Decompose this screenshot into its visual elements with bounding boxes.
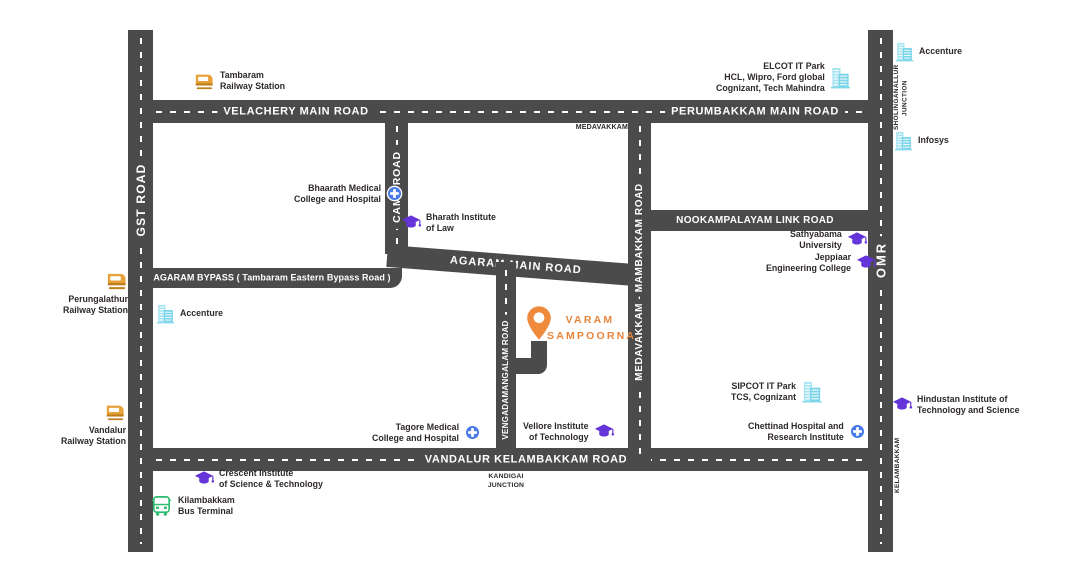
graduation-cap-icon bbox=[401, 214, 421, 231]
label-line: College and Hospital bbox=[294, 194, 381, 205]
landmark-perungalathur-railway-station: Perungalathur Railway Station bbox=[64, 270, 128, 316]
landmark-label: Perungalathur Railway Station bbox=[63, 294, 128, 316]
label-line: ELCOT IT Park bbox=[716, 61, 825, 72]
landmark-accenture-sholinganallur: Accenture bbox=[895, 41, 962, 62]
landmark-label: ELCOT IT Park HCL, Wipro, Ford global Co… bbox=[716, 61, 825, 94]
landmark-hindustan-institute: Hindustan Institute of Technology and Sc… bbox=[892, 394, 1020, 416]
office-building-icon bbox=[894, 130, 913, 151]
road-label-nookampalayam-link-road: NOOKAMPALAYAM LINK ROAD bbox=[670, 213, 840, 229]
graduation-cap-icon bbox=[892, 396, 912, 413]
label-line: College and Hospital bbox=[372, 433, 459, 444]
label-line: Bhaarath Medical bbox=[294, 183, 381, 194]
junction-label-kandigai: KANDIGAI JUNCTION bbox=[481, 472, 531, 490]
label-line: Infosys bbox=[918, 135, 949, 146]
label-line: Chettinad Hospital and bbox=[748, 421, 844, 432]
hospital-cross-icon bbox=[849, 423, 866, 440]
road-medavakkam-mambakkam: MEDAVAKKAM - MAMBAKKAM ROAD bbox=[628, 118, 651, 470]
office-building-icon bbox=[895, 41, 914, 62]
hospital-cross-icon bbox=[386, 185, 403, 202]
road-label-agaram-bypass: AGARAM BYPASS ( Tambaram Eastern Bypass … bbox=[147, 271, 396, 286]
graduation-cap-icon bbox=[847, 231, 867, 248]
landmark-tagore-medical-college: Tagore Medical College and Hospital bbox=[372, 422, 481, 444]
graduation-cap-icon bbox=[856, 254, 876, 271]
project-name-line: VARAM bbox=[547, 313, 633, 329]
junction-label-line: SHOLINGANALLUR bbox=[893, 66, 902, 130]
label-line: Bus Terminal bbox=[178, 506, 235, 517]
landmark-sathyabama-university: Sathyabama University bbox=[790, 229, 867, 251]
landmark-label: Vandalur Railway Station bbox=[61, 425, 126, 447]
landmark-label: SIPCOT IT Park TCS, Cognizant bbox=[731, 381, 796, 403]
junction-label-medavakkam: MEDAVAKKAM bbox=[570, 123, 628, 132]
label-line: Tagore Medical bbox=[372, 422, 459, 433]
landmark-accenture-gst: Accenture bbox=[156, 303, 223, 324]
landmark-label: Chettinad Hospital and Research Institut… bbox=[748, 421, 844, 443]
road-nookampalayam-link: NOOKAMPALAYAM LINK ROAD bbox=[645, 210, 868, 231]
bus-icon bbox=[150, 494, 173, 517]
landmark-label: Tambaram Railway Station bbox=[220, 70, 285, 92]
office-building-icon bbox=[830, 66, 851, 89]
office-building-icon bbox=[156, 303, 175, 324]
junction-label-line: KANDIGAI bbox=[481, 472, 531, 481]
road-omr: OMR bbox=[868, 30, 893, 552]
office-building-icon bbox=[801, 380, 823, 403]
train-icon bbox=[193, 71, 215, 91]
label-line: Accenture bbox=[919, 46, 962, 57]
label-line: Vellore Institute bbox=[523, 421, 589, 432]
landmark-label: Accenture bbox=[919, 46, 962, 57]
label-line: Crescent Institute bbox=[219, 468, 323, 479]
road-label-medavakkam-mambakkam-road: MEDAVAKKAM - MAMBAKKAM ROAD bbox=[633, 177, 647, 386]
project-name: VARAM SAMPOORNA bbox=[547, 313, 633, 345]
label-line: of Law bbox=[426, 223, 496, 234]
landmark-label: Sathyabama University bbox=[790, 229, 842, 251]
label-line: Jeppiaar bbox=[766, 252, 851, 263]
label-line: of Technology bbox=[523, 432, 589, 443]
landmark-label: Tagore Medical College and Hospital bbox=[372, 422, 459, 444]
location-map: VELACHERY MAIN ROAD PERUMBAKKAM MAIN ROA… bbox=[0, 0, 1068, 581]
road-agaram-bypass: AGARAM BYPASS ( Tambaram Eastern Bypass … bbox=[150, 268, 402, 288]
junction-label-sholinganallur: SHOLINGANALLUR JUNCTION bbox=[893, 66, 910, 130]
label-line: Technology and Science bbox=[917, 405, 1020, 416]
label-line: Hindustan Institute of bbox=[917, 394, 1020, 405]
road-gst: GST ROAD bbox=[128, 30, 153, 552]
label-line: Engineering College bbox=[766, 263, 851, 274]
project-name-line: SAMPOORNA bbox=[547, 329, 633, 345]
label-line: HCL, Wipro, Ford global bbox=[716, 72, 825, 83]
landmark-label: Hindustan Institute of Technology and Sc… bbox=[917, 394, 1020, 416]
landmark-jeppiaar-engineering-college: Jeppiaar Engineering College bbox=[766, 252, 876, 274]
label-line: University bbox=[790, 240, 842, 251]
junction-label-line: JUNCTION bbox=[481, 481, 531, 490]
road-label-vandalur-kelambakkam-road: VANDALUR KELAMBAKKAM ROAD bbox=[419, 451, 633, 468]
landmark-bharath-institute-of-law: Bharath Institute of Law bbox=[401, 212, 496, 234]
label-line: Vandalur bbox=[61, 425, 126, 436]
road-velachery-perumbakkam-main: VELACHERY MAIN ROAD PERUMBAKKAM MAIN ROA… bbox=[128, 100, 893, 123]
label-line: Sathyabama bbox=[790, 229, 842, 240]
label-line: Kilambakkam bbox=[178, 495, 235, 506]
label-line: Railway Station bbox=[63, 305, 128, 316]
road-label-velachery-main-road: VELACHERY MAIN ROAD bbox=[217, 103, 374, 120]
landmark-kilambakkam-bus-terminal: Kilambakkam Bus Terminal bbox=[150, 494, 235, 517]
train-icon bbox=[105, 270, 128, 291]
junction-label-kelambakkam: KELAMBAKKAM bbox=[894, 436, 903, 494]
landmark-chettinad-hospital: Chettinad Hospital and Research Institut… bbox=[748, 421, 866, 443]
landmark-crescent-institute: Crescent Institute of Science & Technolo… bbox=[194, 468, 323, 490]
label-line: TCS, Cognizant bbox=[731, 392, 796, 403]
landmark-label: Infosys bbox=[918, 135, 949, 146]
road-label-vengadamangalam-road: VENGADAMANGALAM ROAD bbox=[500, 314, 512, 445]
landmark-label: Vellore Institute of Technology bbox=[523, 421, 589, 443]
landmark-elcot-it-park: ELCOT IT Park HCL, Wipro, Ford global Co… bbox=[716, 61, 851, 94]
landmark-label: Jeppiaar Engineering College bbox=[766, 252, 851, 274]
graduation-cap-icon bbox=[194, 470, 214, 487]
label-line: Accenture bbox=[180, 308, 223, 319]
landmark-label: Bhaarath Medical College and Hospital bbox=[294, 183, 381, 205]
junction-label-line: JUNCTION bbox=[902, 66, 911, 130]
landmark-vandalur-railway-station: Vandalur Railway Station bbox=[60, 402, 126, 447]
label-line: SIPCOT IT Park bbox=[731, 381, 796, 392]
landmark-sipcot-it-park: SIPCOT IT Park TCS, Cognizant bbox=[731, 380, 823, 403]
label-line: of Science & Technology bbox=[219, 479, 323, 490]
landmark-tambaram-railway-station: Tambaram Railway Station bbox=[193, 70, 285, 92]
label-line: Tambaram bbox=[220, 70, 285, 81]
label-line: Research Institute bbox=[748, 432, 844, 443]
landmark-infosys: Infosys bbox=[894, 130, 949, 151]
road-project-access-horizontal bbox=[509, 358, 539, 374]
label-line: Railway Station bbox=[61, 436, 126, 447]
landmark-label: Accenture bbox=[180, 308, 223, 319]
landmark-label: Kilambakkam Bus Terminal bbox=[178, 495, 235, 517]
label-line: Railway Station bbox=[220, 81, 285, 92]
label-line: Bharath Institute bbox=[426, 212, 496, 223]
landmark-bhaarath-medical-college: Bhaarath Medical College and Hospital bbox=[294, 183, 403, 205]
label-line: Perungalathur bbox=[63, 294, 128, 305]
graduation-cap-icon bbox=[594, 423, 614, 440]
landmark-vellore-institute-of-technology: Vellore Institute of Technology bbox=[523, 421, 614, 443]
landmark-label: Bharath Institute of Law bbox=[426, 212, 496, 234]
road-label-gst-road: GST ROAD bbox=[133, 158, 149, 243]
label-line: Cognizant, Tech Mahindra bbox=[716, 83, 825, 94]
landmark-label: Crescent Institute of Science & Technolo… bbox=[219, 468, 323, 490]
road-label-perumbakkam-main-road: PERUMBAKKAM MAIN ROAD bbox=[665, 103, 845, 120]
hospital-cross-icon bbox=[464, 424, 481, 441]
train-icon bbox=[104, 402, 126, 422]
